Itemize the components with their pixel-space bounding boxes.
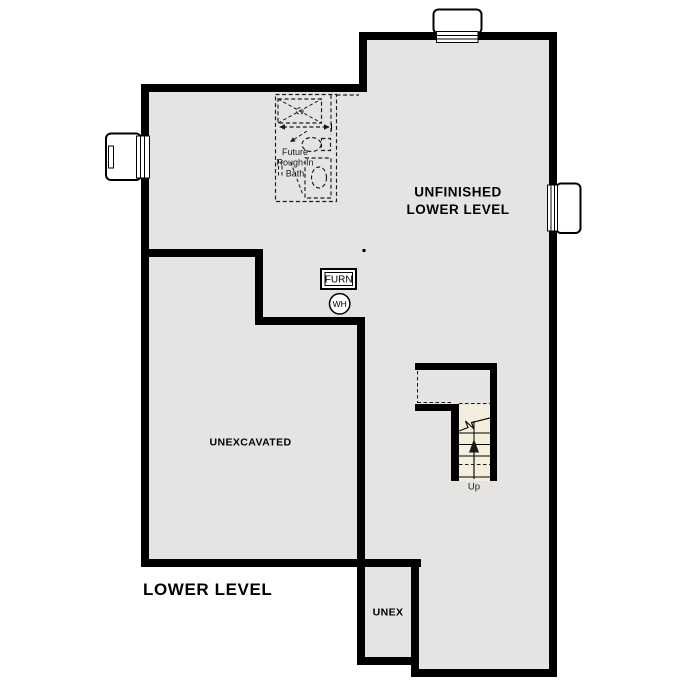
furnace-label: FURN	[325, 275, 353, 286]
right-window-band-icon	[548, 185, 558, 231]
right-window-icon	[556, 184, 581, 234]
unfinished-label-line2: LOWER LEVEL	[407, 202, 510, 217]
future-bath-label-line1: Future	[282, 147, 308, 157]
unfinished-label-line1: UNFINISHED	[414, 185, 502, 200]
future-bath-label-line3: Bath	[286, 169, 305, 179]
stairs-up-label: Up	[468, 482, 480, 493]
water-heater-label: WH	[333, 299, 347, 309]
unexcavated-label: UNEXCAVATED	[210, 437, 292, 449]
water-heater-icon: WH	[330, 294, 350, 314]
plan-title: LOWER LEVEL	[143, 580, 272, 599]
future-bath-label-line2: Rough-In	[276, 158, 313, 168]
post-dot-icon	[363, 249, 366, 252]
furnace-icon: FURN	[321, 269, 356, 289]
top-window-icon	[434, 10, 482, 34]
unex-label: UNEX	[373, 607, 404, 619]
top-window-band-icon	[437, 32, 479, 43]
floor-plan-drawing: Future Rough-In Bath Up FURN	[0, 0, 687, 687]
floor-plan-page: Future Rough-In Bath Up FURN	[0, 0, 687, 687]
